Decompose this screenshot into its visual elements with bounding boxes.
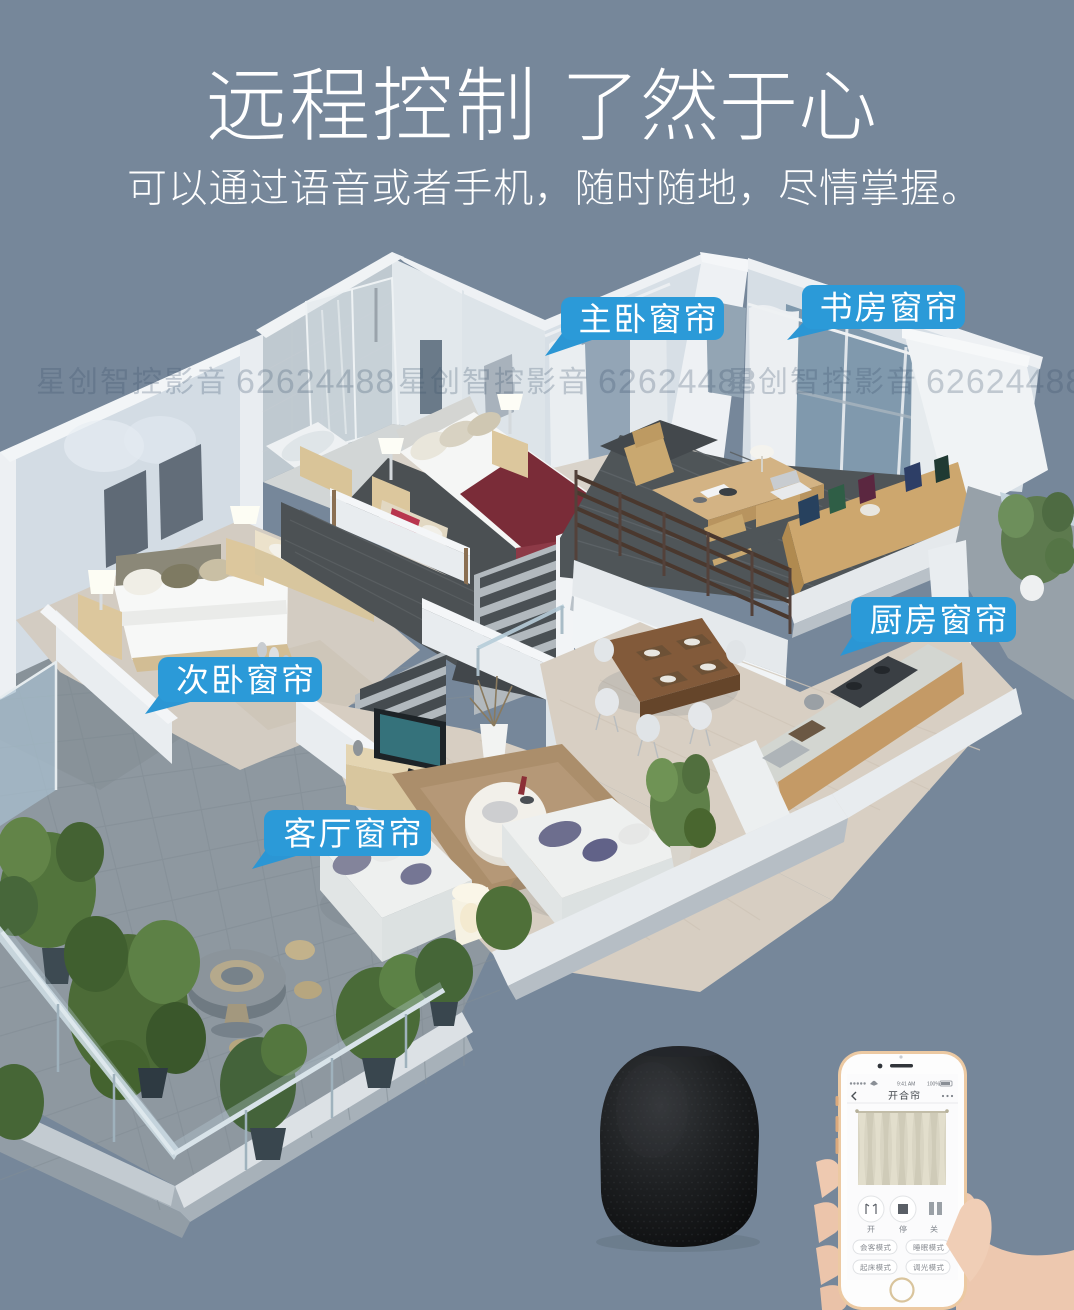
svg-text:100%: 100% [927, 1082, 940, 1088]
svg-text:62624488: 62624488 [236, 363, 395, 401]
svg-text:9:41 AM: 9:41 AM [897, 1082, 915, 1088]
svg-text:62624488: 62624488 [926, 363, 1074, 401]
